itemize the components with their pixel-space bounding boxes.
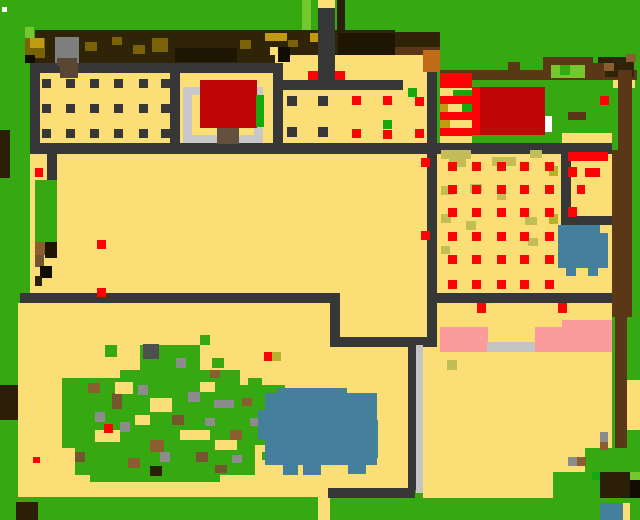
tree-trunk: [217, 128, 239, 144]
game-map[interactable]: [0, 0, 640, 520]
tree-mound: [626, 54, 636, 62]
log: [568, 112, 586, 120]
crop-patch: [528, 238, 538, 246]
grass-strip: [330, 498, 415, 520]
seat: [114, 104, 123, 113]
bush: [105, 345, 117, 357]
corner-water: [600, 503, 623, 520]
wall-bush-log: [35, 242, 45, 255]
fence-line: [618, 70, 632, 152]
clearing: [180, 430, 210, 440]
strawberry: [448, 208, 457, 217]
clearing: [115, 382, 133, 394]
barn-roof-edge: [472, 87, 480, 135]
features: [0, 0, 640, 520]
strawberry: [497, 280, 506, 289]
strawberry: [497, 185, 506, 194]
seat: [139, 129, 148, 138]
seat: [90, 104, 99, 113]
fence-post: [508, 62, 520, 70]
beach-towel: [440, 327, 488, 352]
sprout: [383, 120, 392, 129]
log: [112, 393, 122, 409]
log: [196, 452, 208, 462]
bush: [248, 378, 262, 388]
log: [215, 465, 227, 473]
strawberry: [497, 232, 506, 241]
strawberry: [497, 162, 506, 171]
rock: [120, 422, 130, 432]
tree-green: [256, 95, 264, 127]
strawberry: [448, 232, 457, 241]
stall-awning: [440, 128, 472, 136]
small-pond: [588, 268, 598, 276]
seat: [90, 129, 99, 138]
strawberry: [520, 185, 529, 194]
seat: [139, 79, 148, 88]
berry: [577, 185, 585, 194]
grass-patch: [585, 448, 640, 474]
rock: [95, 412, 105, 422]
strawberry: [545, 255, 554, 264]
strawberry: [472, 232, 481, 241]
beach-towel: [562, 320, 612, 328]
berry: [33, 457, 40, 463]
big-pond: [348, 462, 366, 474]
log: [150, 440, 164, 452]
crop-patch: [447, 360, 457, 370]
clearing: [135, 415, 150, 425]
log: [242, 398, 252, 406]
strawberry: [448, 162, 457, 171]
rock: [205, 418, 215, 426]
stall-awning: [440, 136, 472, 143]
strawberry: [520, 255, 529, 264]
fence-post: [585, 57, 593, 78]
beach-path: [416, 345, 423, 493]
small-pond: [566, 268, 576, 276]
stall-awning: [440, 120, 450, 128]
crate-dark: [287, 96, 297, 106]
statue-base: [60, 63, 78, 78]
strawberry: [545, 232, 554, 241]
strawberry: [472, 162, 481, 171]
big-pond: [258, 410, 266, 440]
rock: [176, 358, 186, 368]
grass-highlight: [630, 472, 640, 480]
stall-awning: [440, 73, 472, 80]
big-tree-canopy: [200, 80, 257, 128]
clearing: [215, 440, 237, 450]
seat: [66, 79, 75, 88]
crop-patch: [466, 221, 476, 230]
wall-bush-dark: [35, 276, 42, 286]
clearing: [150, 398, 172, 412]
grass-strip: [0, 497, 318, 520]
log: [210, 370, 220, 378]
rock: [138, 385, 148, 395]
berry: [415, 97, 424, 106]
berry: [97, 288, 106, 297]
berry: [558, 303, 567, 313]
wall-bush: [35, 180, 57, 242]
sprout: [408, 88, 417, 97]
berry: [97, 240, 106, 249]
seat: [42, 104, 51, 113]
barn-door: [545, 116, 552, 132]
berry: [104, 424, 113, 433]
strawberry: [448, 280, 457, 289]
big-pond: [303, 465, 321, 475]
berry: [600, 96, 609, 105]
berry: [352, 129, 361, 138]
seat: [161, 79, 170, 88]
rock: [600, 432, 608, 442]
log: [75, 452, 85, 462]
tree-row: [615, 317, 627, 448]
seed: [272, 352, 281, 361]
strawberry: [545, 208, 554, 217]
berry: [421, 231, 430, 240]
berry: [477, 303, 486, 313]
barn-roof: [480, 87, 545, 135]
berry: [264, 352, 272, 361]
big-pond: [277, 388, 347, 395]
rock: [160, 452, 170, 462]
wall-bush-dark: [45, 242, 57, 258]
big-pond: [370, 420, 378, 458]
clearing: [200, 382, 215, 392]
crop-patch: [530, 150, 542, 158]
berry: [383, 96, 392, 105]
stall-awning: [440, 96, 472, 104]
log: [128, 458, 140, 468]
seat: [161, 104, 170, 113]
crop-patch: [441, 150, 471, 159]
rock: [232, 455, 242, 463]
crop-patch: [441, 246, 450, 254]
strawberry: [497, 208, 506, 217]
corner-sand: [623, 503, 630, 520]
seat: [139, 104, 148, 113]
strawberry: [520, 208, 529, 217]
log: [577, 457, 586, 466]
bush-dark: [150, 466, 162, 476]
shelf-red: [568, 152, 608, 161]
strawberry: [545, 162, 554, 171]
fence-post: [543, 57, 551, 78]
strawberry: [472, 280, 481, 289]
seat: [66, 129, 75, 138]
log: [230, 430, 242, 440]
strawberry: [545, 280, 554, 289]
seat: [42, 129, 51, 138]
rock: [188, 392, 200, 402]
crate-dark: [318, 127, 328, 137]
seat: [66, 104, 75, 113]
strawberry: [520, 162, 529, 171]
strawberry: [448, 185, 457, 194]
seat: [90, 79, 99, 88]
tree-row: [612, 150, 632, 317]
berry: [308, 71, 318, 80]
big-pond: [283, 463, 298, 475]
log: [172, 415, 184, 425]
berry: [383, 130, 392, 139]
strawberry: [448, 255, 457, 264]
berry: [568, 207, 577, 217]
rock: [214, 400, 234, 408]
seat: [114, 79, 123, 88]
beach-towel: [535, 327, 612, 352]
tree-mound: [604, 63, 614, 71]
crate: [423, 50, 440, 72]
stall-awning: [440, 80, 472, 88]
berry: [421, 158, 430, 167]
berry: [415, 129, 424, 138]
berry: [568, 167, 577, 177]
seat: [42, 79, 51, 88]
pond-notch: [600, 225, 608, 233]
strawberry: [497, 255, 506, 264]
berry: [335, 71, 345, 80]
crate-dark: [287, 127, 297, 137]
berry: [352, 96, 361, 105]
stall-awning: [440, 104, 448, 112]
strawberry: [520, 232, 529, 241]
bush: [200, 335, 210, 345]
strawberry: [520, 280, 529, 289]
rock-large: [143, 344, 159, 359]
rock: [568, 457, 577, 466]
sprout: [592, 472, 600, 480]
strawberry: [472, 255, 481, 264]
crate-dark: [318, 96, 328, 106]
log: [600, 442, 608, 450]
pen-grass: [560, 65, 570, 75]
strawberry: [545, 185, 554, 194]
strawberry: [472, 208, 481, 217]
strawberry: [472, 185, 481, 194]
shelf-red: [585, 168, 600, 177]
seat: [114, 129, 123, 138]
bush: [212, 358, 224, 368]
beach-path: [487, 342, 535, 352]
crop-patch: [525, 217, 537, 225]
stall-awning: [440, 112, 472, 120]
seat: [161, 129, 170, 138]
berry: [35, 168, 43, 177]
log: [88, 383, 100, 393]
dirt-corner: [16, 502, 38, 520]
big-pond: [265, 393, 377, 465]
